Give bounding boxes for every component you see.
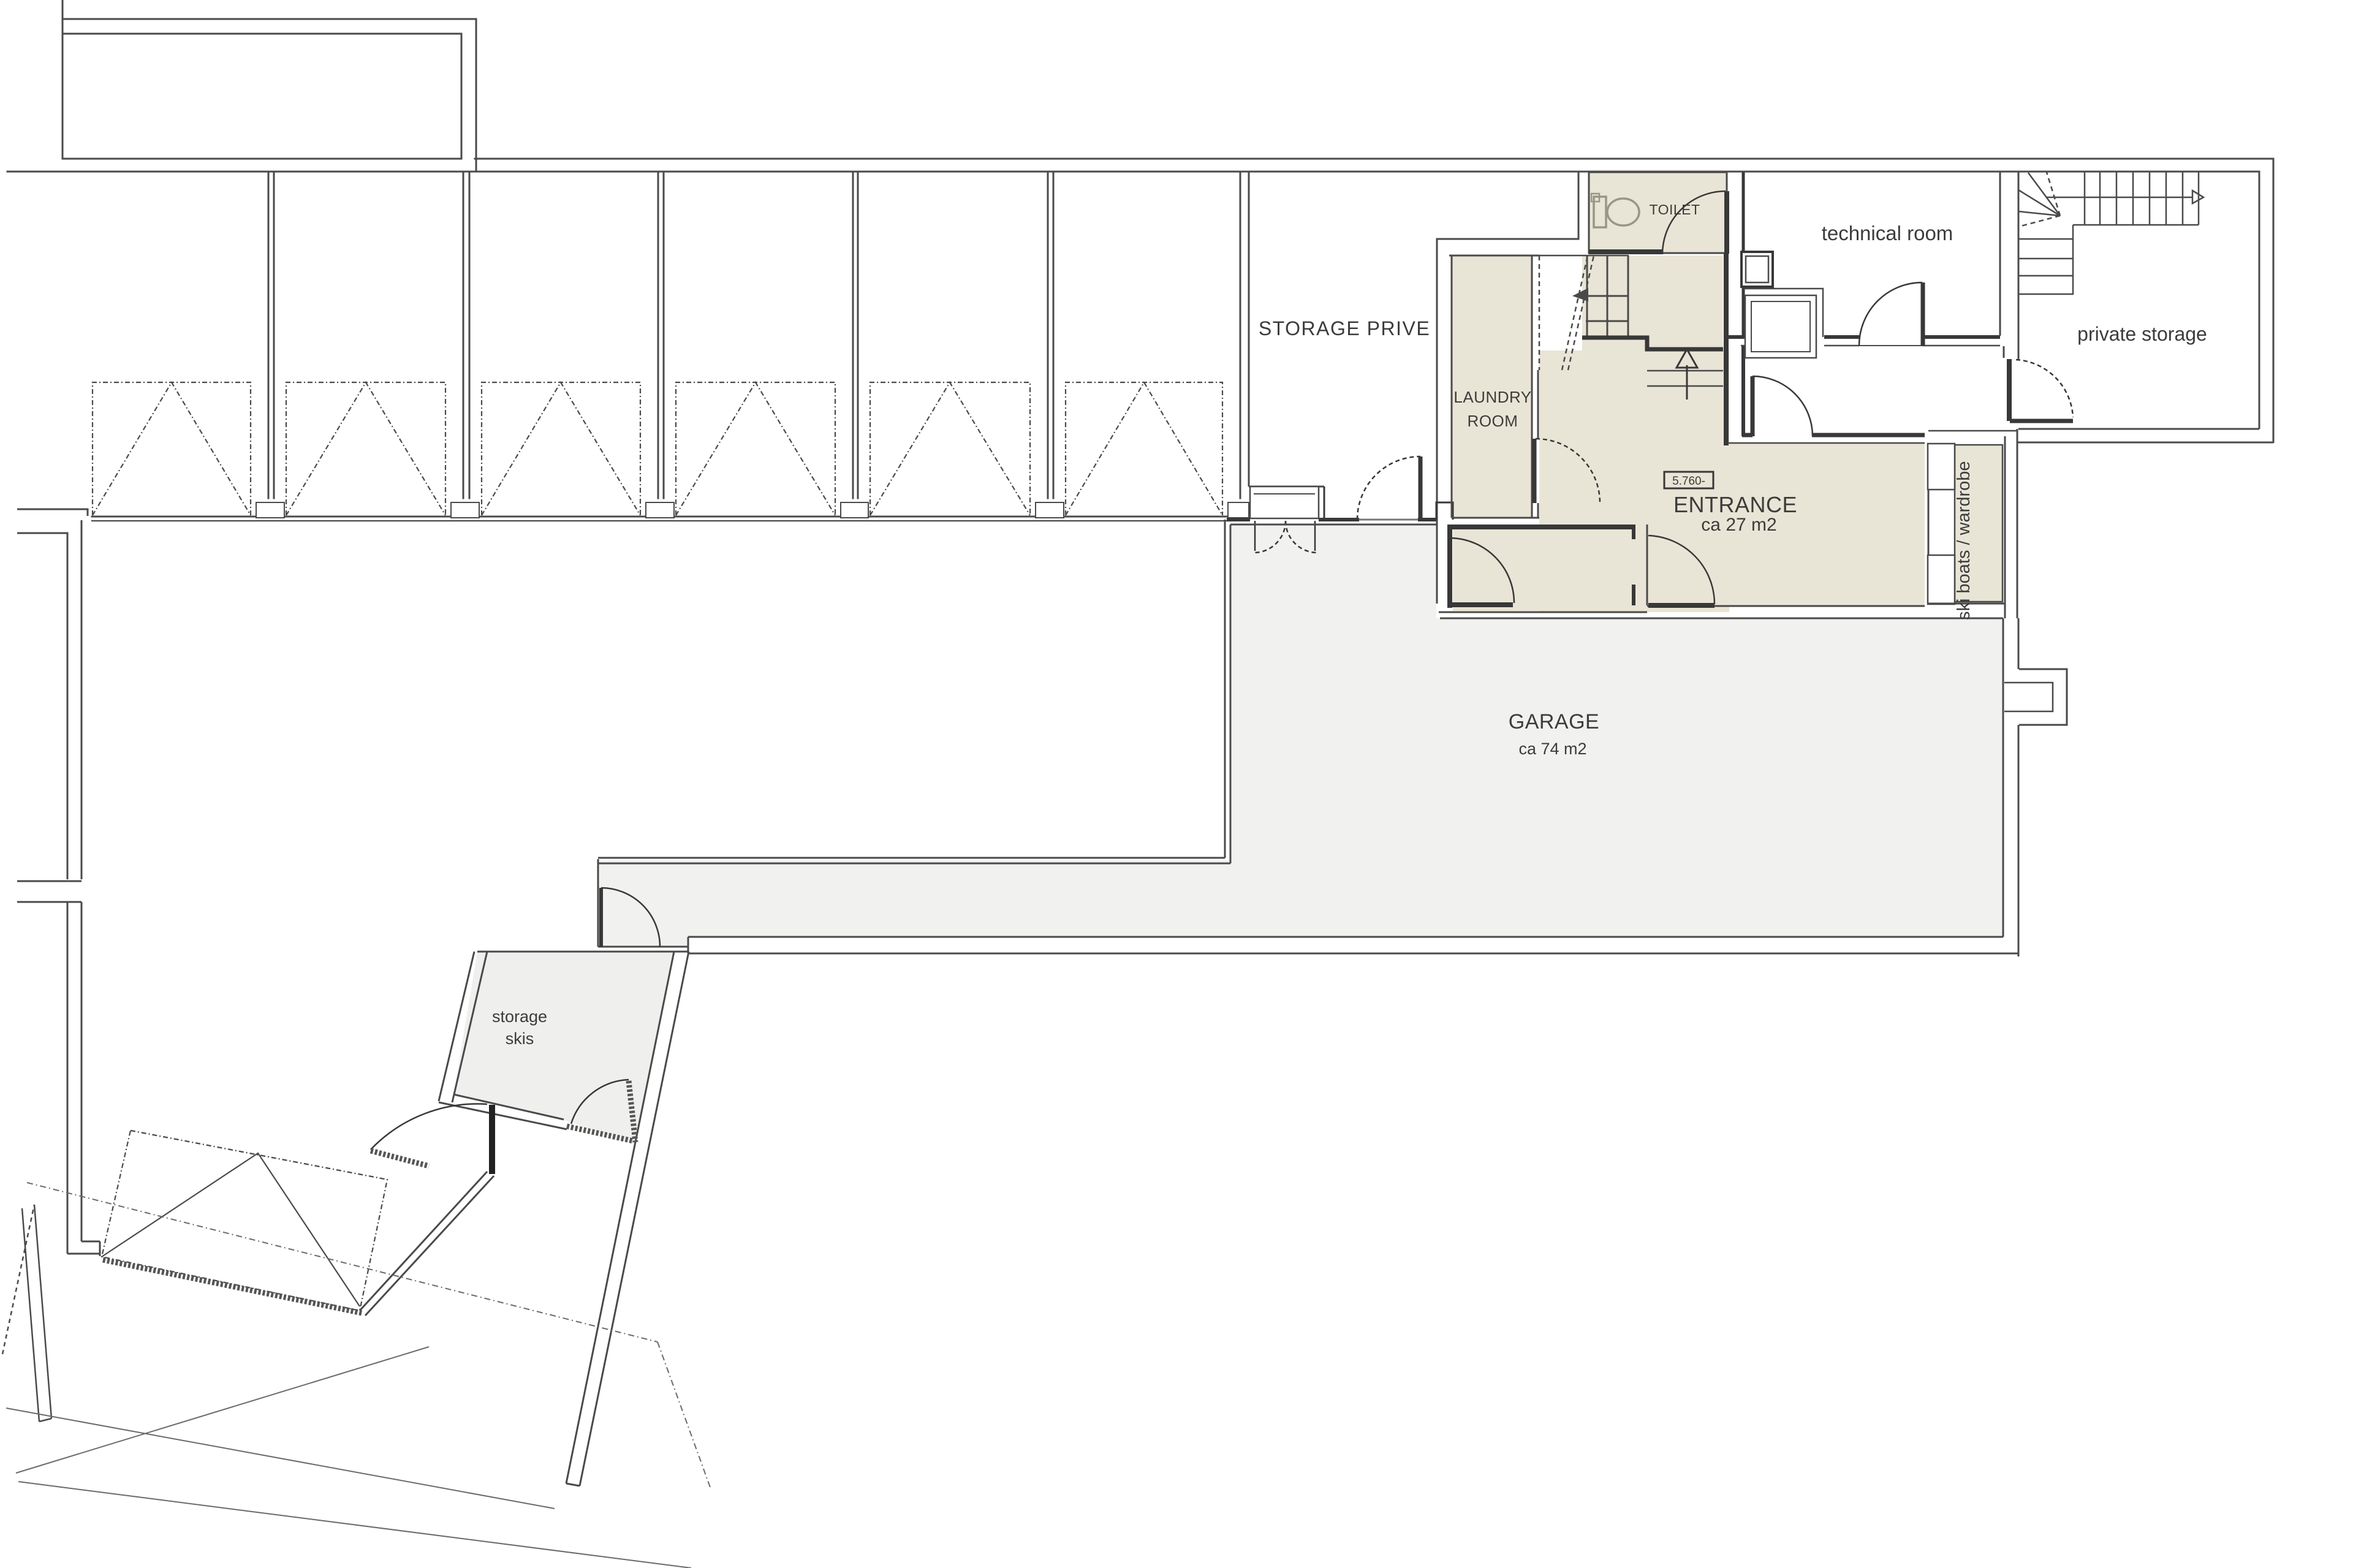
svg-text:ENTRANCE: ENTRANCE xyxy=(1673,492,1797,517)
svg-text:LAUNDRY: LAUNDRY xyxy=(1453,388,1531,406)
svg-text:technical room: technical room xyxy=(1822,222,1953,244)
svg-text:ca 74 m2: ca 74 m2 xyxy=(1518,740,1586,758)
svg-text:ski boats / wardrobe: ski boats / wardrobe xyxy=(1954,461,1974,620)
svg-text:storage: storage xyxy=(492,1007,547,1026)
svg-text:GARAGE: GARAGE xyxy=(1509,710,1599,733)
svg-text:skis: skis xyxy=(506,1029,534,1048)
svg-text:5.760-: 5.760- xyxy=(1672,475,1705,488)
svg-text:STORAGE PRIVE: STORAGE PRIVE xyxy=(1259,317,1430,339)
svg-text:ca 27 m2: ca 27 m2 xyxy=(1701,515,1776,535)
svg-text:ROOM: ROOM xyxy=(1468,412,1518,430)
svg-text:TOILET: TOILET xyxy=(1649,202,1700,218)
svg-text:private storage: private storage xyxy=(2077,323,2207,345)
